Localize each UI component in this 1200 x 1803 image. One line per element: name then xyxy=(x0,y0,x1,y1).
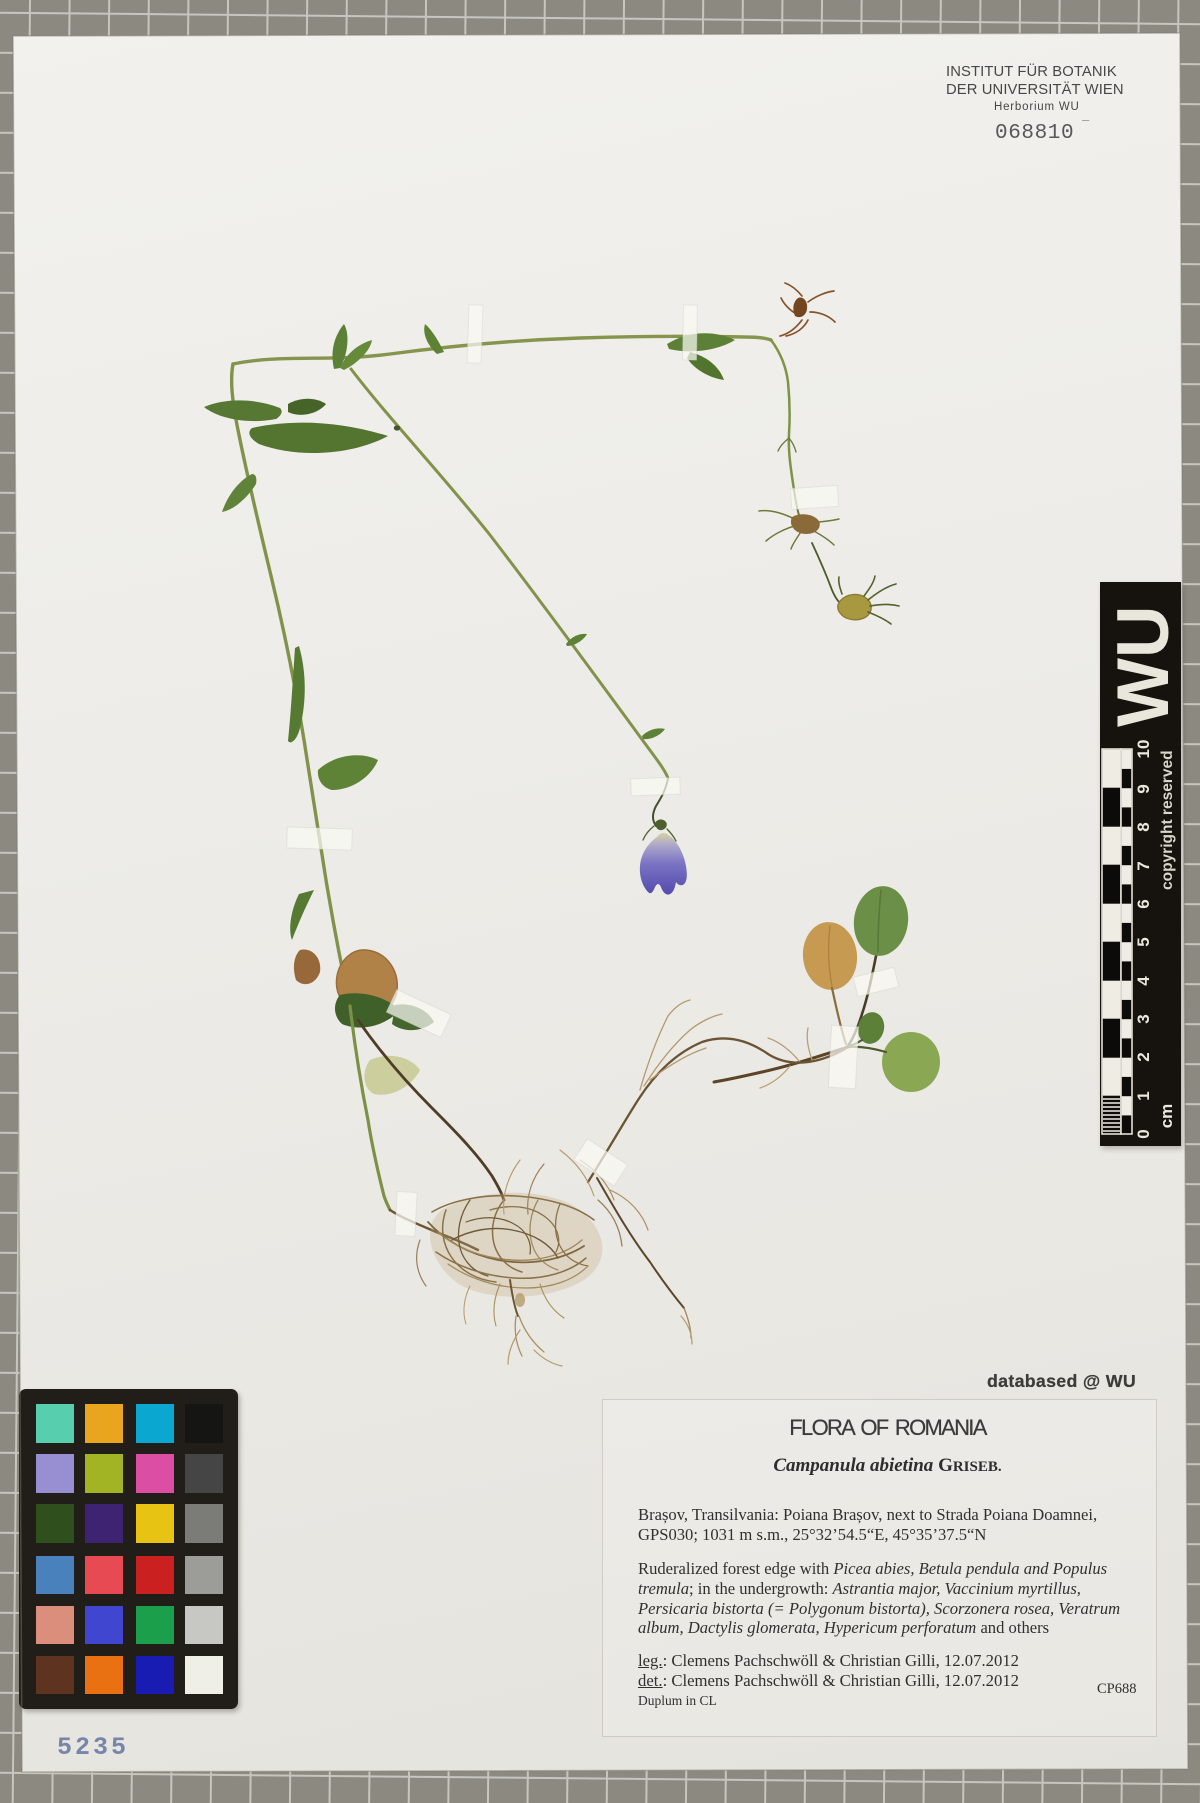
svg-text:1: 1 xyxy=(1134,1091,1153,1100)
svg-text:WU: WU xyxy=(1103,605,1184,727)
svg-text:3: 3 xyxy=(1134,1014,1153,1023)
svg-text:10: 10 xyxy=(1134,740,1153,759)
svg-text:copyright reserved: copyright reserved xyxy=(1159,750,1176,890)
svg-text:6: 6 xyxy=(1134,899,1153,908)
svg-text:0: 0 xyxy=(1134,1129,1153,1138)
svg-text:8: 8 xyxy=(1134,822,1153,831)
svg-text:2: 2 xyxy=(1134,1052,1153,1061)
svg-text:9: 9 xyxy=(1134,784,1153,793)
svg-text:7: 7 xyxy=(1134,861,1153,870)
svg-text:4: 4 xyxy=(1134,976,1153,986)
svg-text:5: 5 xyxy=(1134,937,1153,946)
svg-text:cm: cm xyxy=(1157,1104,1176,1129)
